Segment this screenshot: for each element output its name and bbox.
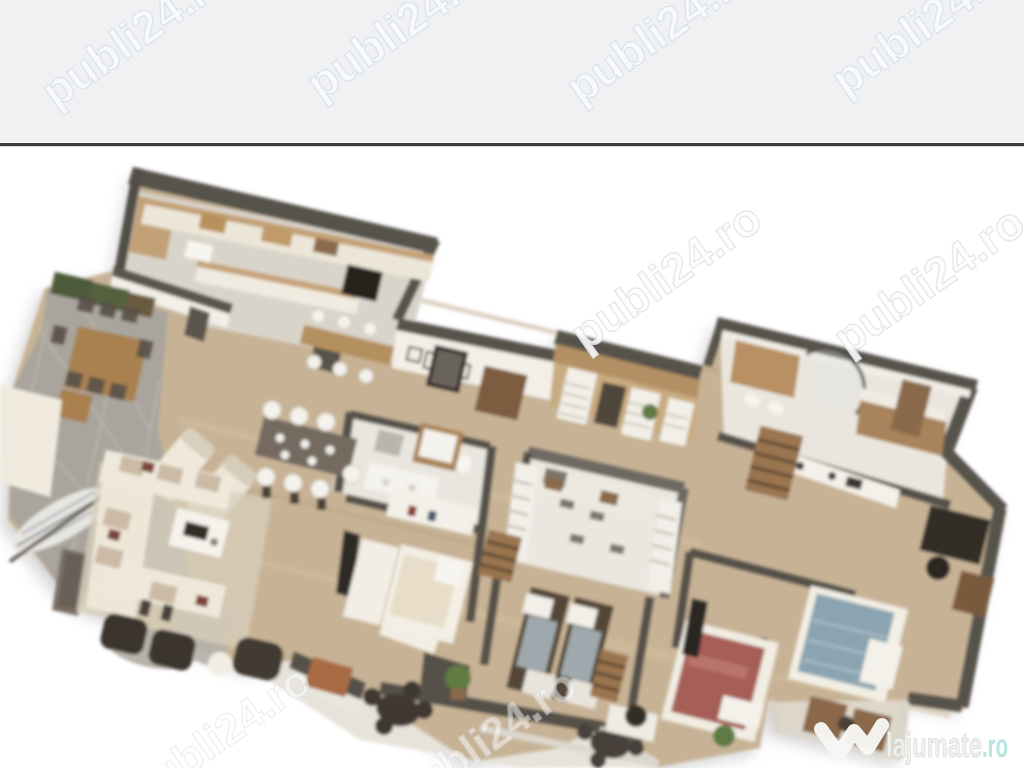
svg-text:lajumate: lajumate — [886, 726, 982, 765]
svg-text:.ro: .ro — [982, 727, 1008, 764]
